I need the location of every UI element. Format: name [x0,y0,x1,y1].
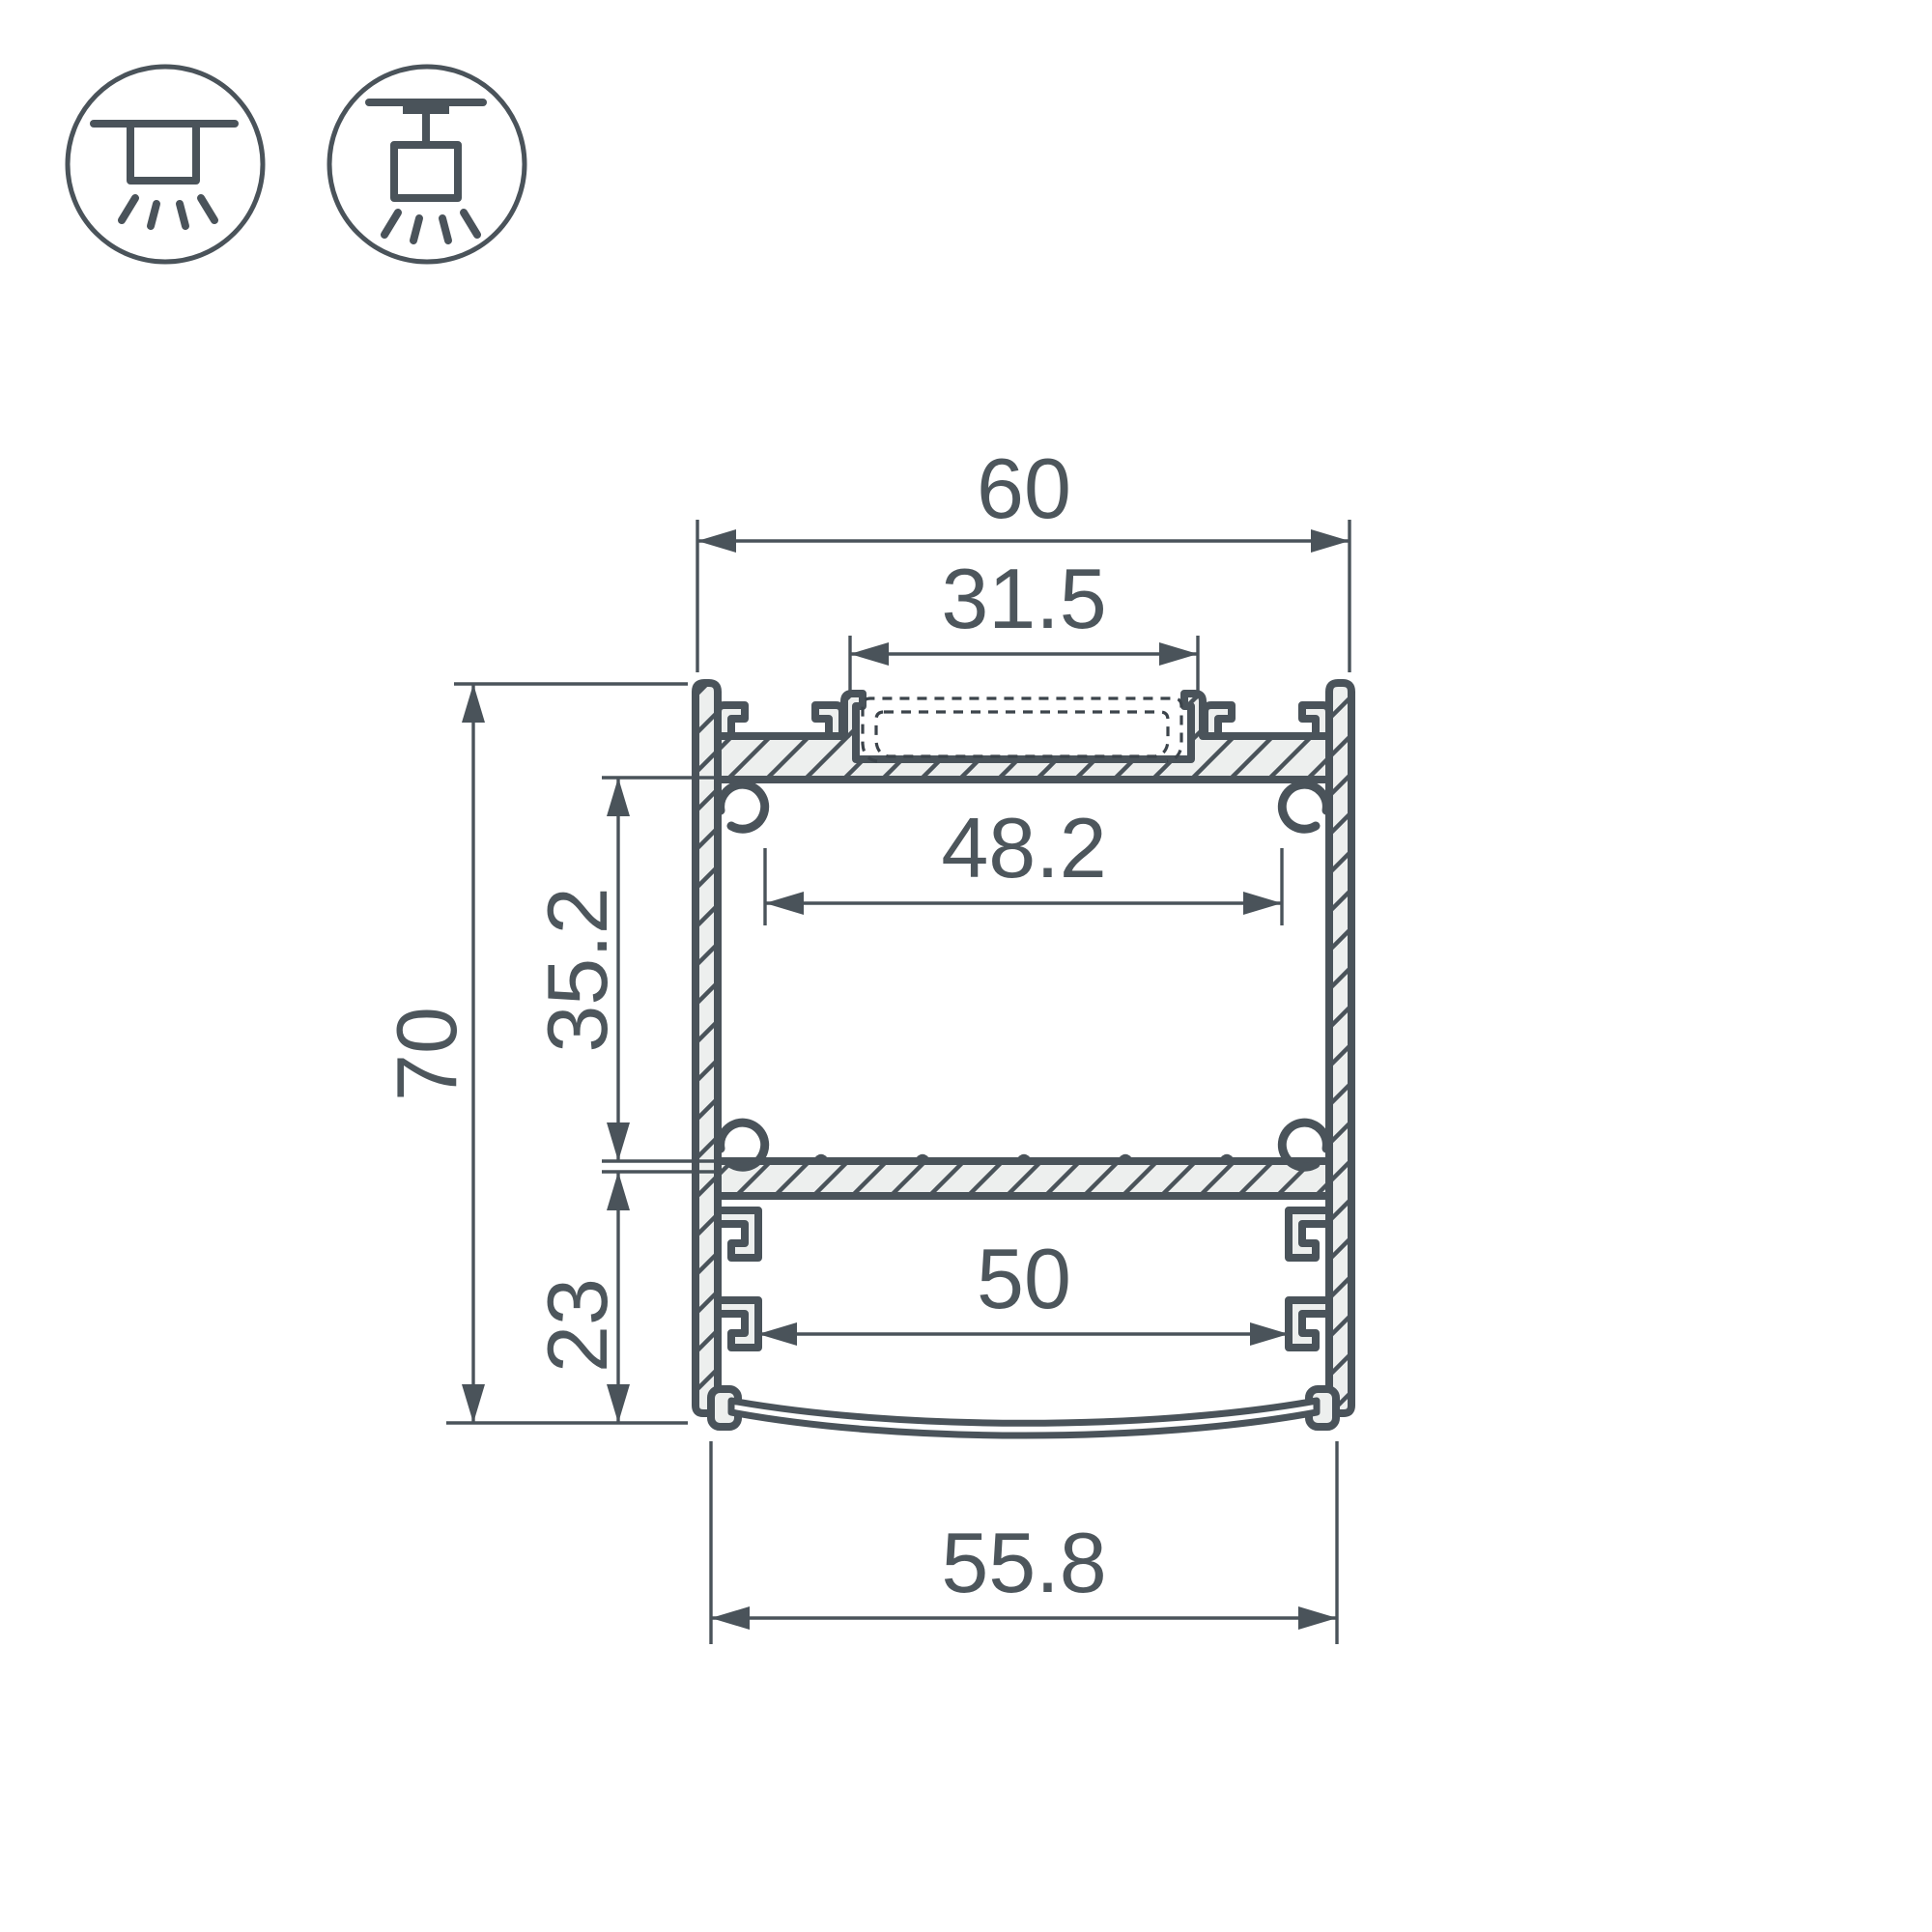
screw-boss [1282,784,1326,829]
dim-inner-width-label: 48.2 [941,800,1106,895]
surface-mount-icon [68,67,263,262]
top-hook [718,705,745,736]
diffuser-lens [731,1401,1317,1435]
top-hook [1302,705,1329,736]
dim-lower-width-label: 50 [977,1231,1071,1326]
top-hook [815,705,842,736]
dimensions: 60 31.5 48.2 35.2 70 [379,440,1350,1644]
dim-slot-width-label: 31.5 [941,551,1106,646]
dim-bottom-width-label: 55.8 [941,1515,1106,1610]
dim-lower-width: 50 [758,1231,1289,1346]
clip-hook [1289,1300,1329,1348]
clip-hook [1289,1210,1329,1258]
screw-boss [721,784,765,829]
pendant-mount-icon [329,67,525,262]
dim-lower-height: 23 [529,1172,720,1423]
cover-strip-dashed [863,698,1181,761]
clip-hook [718,1210,758,1258]
technical-drawing-svg: 60 31.5 48.2 35.2 70 [0,0,1932,1932]
dim-upper-height: 35.2 [529,778,720,1161]
clip-hook [718,1300,758,1348]
dim-slot-width: 31.5 [850,551,1198,692]
drawing-page: 60 31.5 48.2 35.2 70 [0,0,1932,1932]
dim-top-width-label: 60 [977,440,1071,536]
surface-mount-icon-circle [68,67,263,262]
top-hook [1205,705,1232,736]
dim-upper-height-label: 35.2 [529,887,625,1052]
dim-lower-height-label: 23 [529,1278,625,1373]
dim-total-height-label: 70 [379,1007,474,1101]
pendant-mount-icon-circle [329,67,525,262]
dim-bottom-width: 55.8 [711,1441,1337,1644]
dim-inner-width: 48.2 [765,800,1282,925]
